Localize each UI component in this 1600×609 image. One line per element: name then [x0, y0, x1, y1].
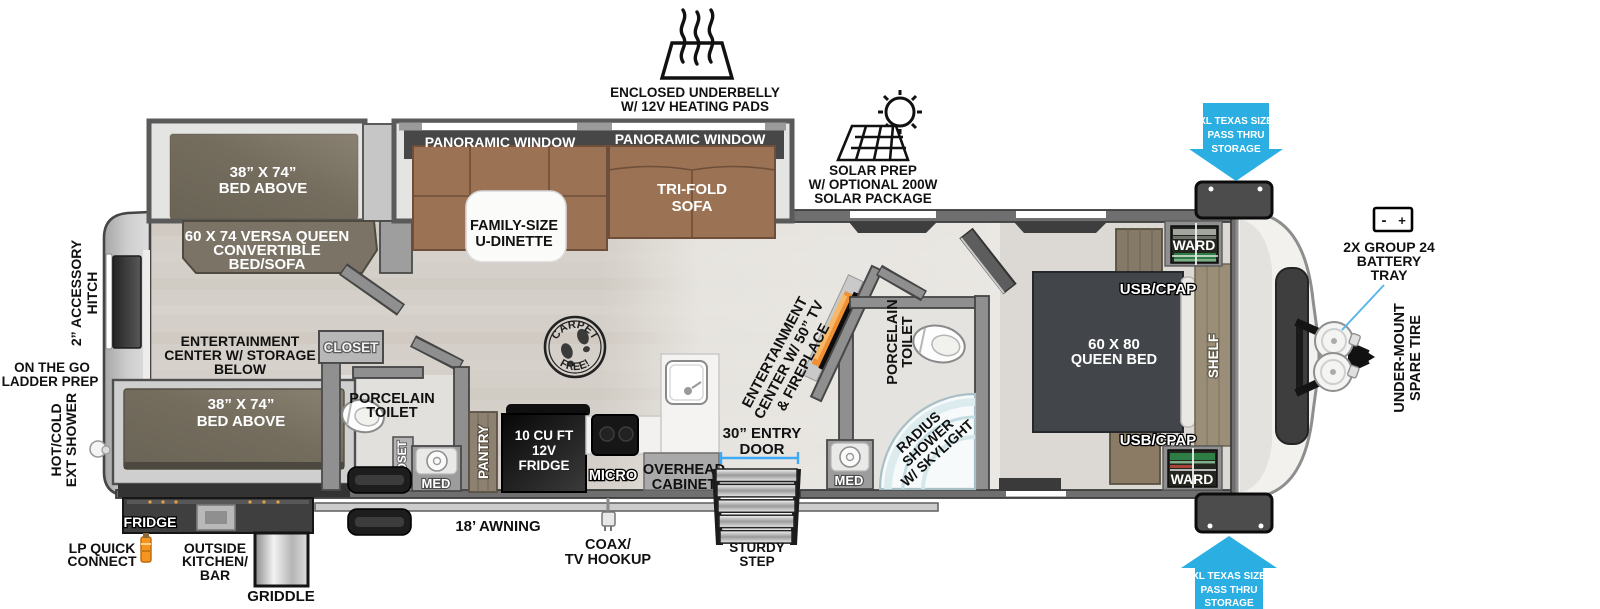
svg-text:CLOSET: CLOSET [324, 340, 380, 355]
svg-text:SHELF: SHELF [1206, 334, 1221, 378]
svg-text:ENCLOSED UNDERBELLY: ENCLOSED UNDERBELLY [610, 85, 780, 100]
svg-text:FAMILY-SIZE: FAMILY-SIZE [470, 218, 558, 234]
svg-text:PANTRY: PANTRY [476, 425, 491, 479]
svg-text:10 CU FT: 10 CU FT [515, 428, 574, 443]
svg-text:CONNECT: CONNECT [67, 553, 137, 569]
svg-text:WARD: WARD [1173, 237, 1216, 253]
svg-text:38” X 74”: 38” X 74” [230, 164, 297, 181]
svg-text:W/ 12V HEATING PADS: W/ 12V HEATING PADS [621, 99, 769, 114]
svg-text:LADDER PREP: LADDER PREP [2, 374, 99, 389]
svg-text:HITCH: HITCH [84, 272, 100, 315]
svg-text:60 X 80: 60 X 80 [1088, 336, 1140, 353]
svg-text:SPARE TIRE: SPARE TIRE [1408, 315, 1424, 401]
svg-text:PORCELAIN: PORCELAIN [885, 299, 901, 384]
svg-text:TOILET: TOILET [366, 405, 417, 421]
svg-text:TRAY: TRAY [1371, 267, 1408, 283]
svg-text:TRI-FOLD: TRI-FOLD [657, 181, 727, 198]
svg-text:MICRO: MICRO [589, 468, 637, 484]
svg-text:MED: MED [422, 476, 451, 491]
svg-text:PASS THRU: PASS THRU [1200, 585, 1257, 596]
svg-text:U-DINETTE: U-DINETTE [475, 234, 553, 250]
svg-text:SOLAR PACKAGE: SOLAR PACKAGE [814, 191, 932, 206]
svg-text:12V: 12V [532, 443, 556, 458]
svg-text:DOOR: DOOR [740, 441, 785, 458]
svg-text:30” ENTRY: 30” ENTRY [723, 425, 802, 442]
svg-text:2” ACCESSORY: 2” ACCESSORY [68, 239, 84, 346]
svg-text:BAR: BAR [200, 567, 230, 583]
svg-text:EXT SHOWER: EXT SHOWER [63, 393, 79, 487]
svg-text:UNDER-MOUNT: UNDER-MOUNT [1392, 303, 1408, 413]
svg-text:STORAGE: STORAGE [1204, 598, 1254, 609]
svg-text:XL TEXAS SIZE: XL TEXAS SIZE [1199, 116, 1273, 127]
svg-text:MED: MED [835, 473, 864, 488]
svg-text:STEP: STEP [739, 554, 774, 569]
svg-text:STORAGE: STORAGE [1211, 144, 1261, 155]
svg-text:PASS THRU: PASS THRU [1207, 130, 1264, 141]
svg-text:CABINET: CABINET [652, 477, 717, 493]
svg-text:SOFA: SOFA [672, 198, 713, 215]
svg-text:XL TEXAS SIZE: XL TEXAS SIZE [1192, 571, 1266, 582]
svg-text:USB/CPAP: USB/CPAP [1120, 281, 1196, 298]
svg-text:SOLAR PREP: SOLAR PREP [829, 163, 917, 178]
svg-text:W/ OPTIONAL 200W: W/ OPTIONAL 200W [809, 177, 938, 192]
svg-text:BED/SOFA: BED/SOFA [229, 256, 306, 273]
svg-text:PANORAMIC WINDOW: PANORAMIC WINDOW [425, 134, 576, 150]
svg-text:ON THE GO: ON THE GO [14, 360, 90, 375]
svg-text:PANORAMIC WINDOW: PANORAMIC WINDOW [615, 131, 766, 147]
svg-text:TV HOOKUP: TV HOOKUP [565, 552, 652, 568]
svg-text:QUEEN BED: QUEEN BED [1071, 352, 1157, 368]
svg-text:38” X 74”: 38” X 74” [208, 396, 275, 413]
svg-text:-: - [1382, 212, 1387, 229]
svg-text:+: + [1398, 213, 1406, 228]
svg-text:HOT/COLD: HOT/COLD [48, 403, 64, 476]
svg-text:COAX/: COAX/ [585, 537, 631, 553]
svg-text:GRIDDLE: GRIDDLE [247, 588, 315, 605]
svg-text:FRIDGE: FRIDGE [124, 514, 177, 530]
svg-text:BED ABOVE: BED ABOVE [197, 413, 286, 430]
svg-text:BELOW: BELOW [214, 361, 267, 377]
svg-text:WARD: WARD [1171, 471, 1214, 487]
svg-text:STURDY: STURDY [729, 540, 785, 555]
svg-text:TOILET: TOILET [900, 316, 916, 367]
svg-text:BED ABOVE: BED ABOVE [219, 180, 308, 197]
svg-text:18’ AWNING: 18’ AWNING [455, 518, 540, 535]
svg-text:FRIDGE: FRIDGE [518, 458, 569, 473]
